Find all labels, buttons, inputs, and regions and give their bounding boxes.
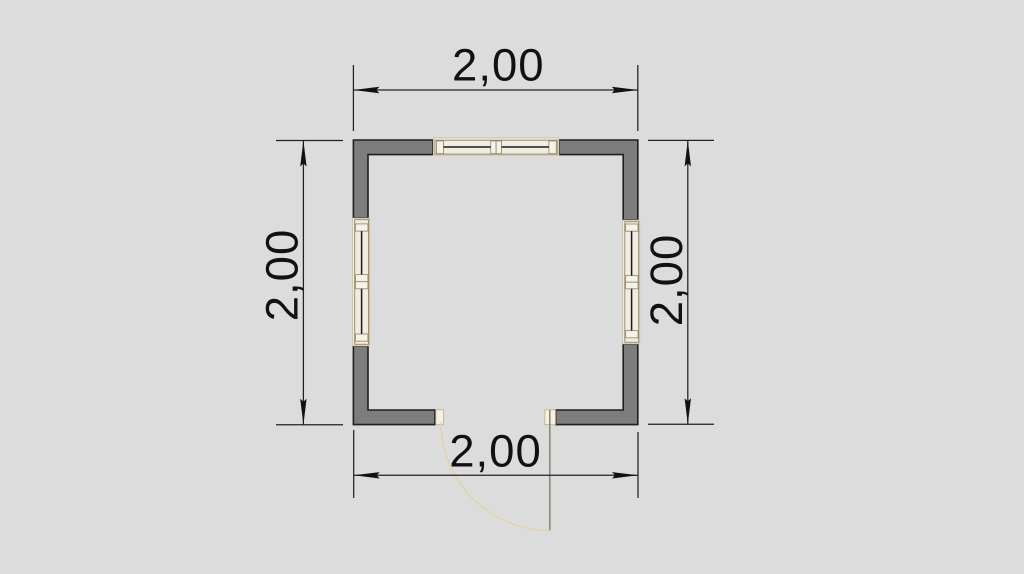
- svg-text:2,00: 2,00: [641, 234, 692, 327]
- svg-text:2,00: 2,00: [452, 40, 545, 91]
- svg-text:2,00: 2,00: [257, 229, 308, 322]
- svg-text:2,00: 2,00: [449, 426, 542, 477]
